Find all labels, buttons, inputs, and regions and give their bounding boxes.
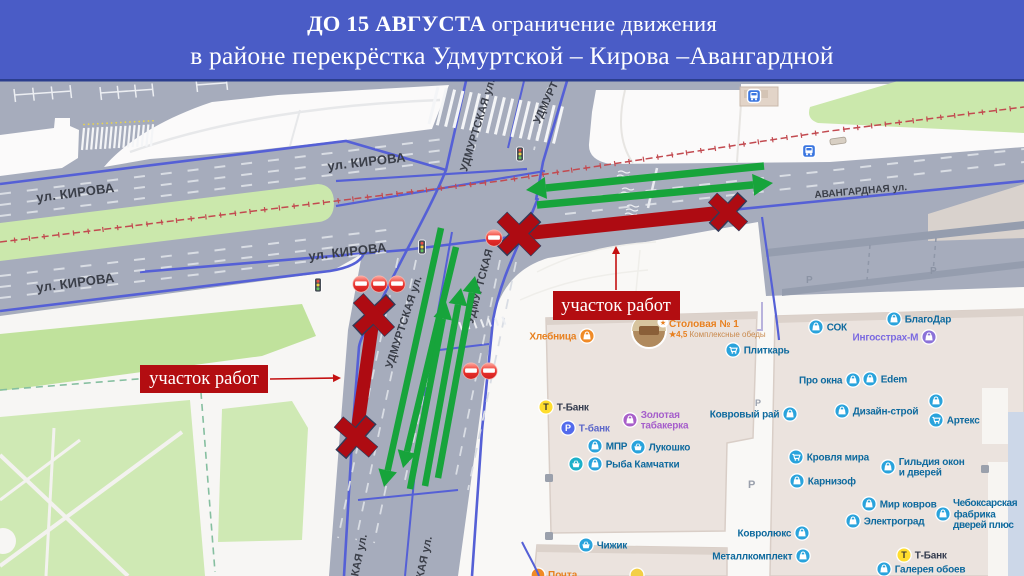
svg-text:дверей плюс: дверей плюс [953, 520, 1014, 531]
svg-text:Про окна: Про окна [799, 376, 843, 387]
svg-text:Р: Р [755, 398, 761, 408]
svg-text:Т-банк: Т-банк [579, 423, 611, 435]
svg-text:Чижик: Чижик [597, 541, 629, 552]
svg-text:табакерка: табакерка [641, 420, 689, 432]
svg-text:Галерея обоев: Галерея обоев [895, 564, 966, 576]
svg-text:участок работ: участок работ [149, 369, 259, 389]
svg-text:Дизайн-строй: Дизайн-строй [853, 407, 919, 418]
svg-text:Р: Р [565, 423, 571, 433]
svg-text:★: ★ [660, 319, 666, 327]
svg-text:Плиткарь: Плиткарь [744, 346, 790, 357]
svg-text:Электроград: Электроград [864, 517, 926, 528]
svg-text:Т: Т [901, 550, 907, 560]
svg-text:Т-Банк: Т-Банк [557, 403, 590, 414]
svg-text:Мир ковров: Мир ковров [880, 500, 937, 511]
svg-text:Т: Т [543, 402, 549, 412]
svg-text:в районе перекрёстка Удмуртско: в районе перекрёстка Удмуртской – Кирова… [190, 41, 834, 70]
svg-text:участок работ: участок работ [561, 296, 671, 316]
svg-text:Золотая: Золотая [641, 410, 680, 421]
svg-text:фабрика: фабрика [954, 509, 997, 521]
svg-text:Столовая № 1: Столовая № 1 [669, 319, 739, 330]
svg-text:Артекс: Артекс [947, 416, 981, 427]
svg-text:Т-Банк: Т-Банк [915, 551, 948, 562]
svg-text:Ковролюкс: Ковролюкс [737, 529, 791, 540]
svg-text:Ковровый рай: Ковровый рай [710, 410, 780, 421]
svg-text:Почта: Почта [548, 570, 578, 576]
svg-text:Хлебница: Хлебница [529, 331, 577, 343]
svg-text:Ингосстрах-М: Ингосстрах-М [853, 333, 919, 344]
svg-text:и дверей: и дверей [899, 468, 942, 479]
svg-text:МПР: МПР [606, 442, 628, 453]
svg-text:ДО 15 АВГУСТА ограничение движ: ДО 15 АВГУСТА ограничение движения [307, 11, 717, 36]
svg-text:Р: Р [930, 266, 937, 277]
svg-text:Чебоксарская: Чебоксарская [953, 497, 1018, 509]
svg-text:Кровля мира: Кровля мира [807, 453, 870, 464]
svg-text:БлагоДар: БлагоДар [905, 315, 952, 326]
svg-text:Рыба Камчатки: Рыба Камчатки [606, 459, 680, 471]
svg-text:★4,5 Комплексные обеды: ★4,5 Комплексные обеды [669, 330, 766, 339]
svg-text:Карнизоф: Карнизоф [808, 476, 857, 488]
svg-text:Edem: Edem [881, 375, 908, 386]
svg-text:Р: Р [806, 275, 813, 286]
svg-text:Лукошко: Лукошко [649, 443, 691, 454]
svg-text:СОК: СОК [827, 323, 848, 334]
svg-text:Р: Р [748, 479, 755, 491]
svg-text:Металлкомплект: Металлкомплект [712, 552, 792, 563]
svg-text:Гильдия окон: Гильдия окон [899, 457, 965, 468]
